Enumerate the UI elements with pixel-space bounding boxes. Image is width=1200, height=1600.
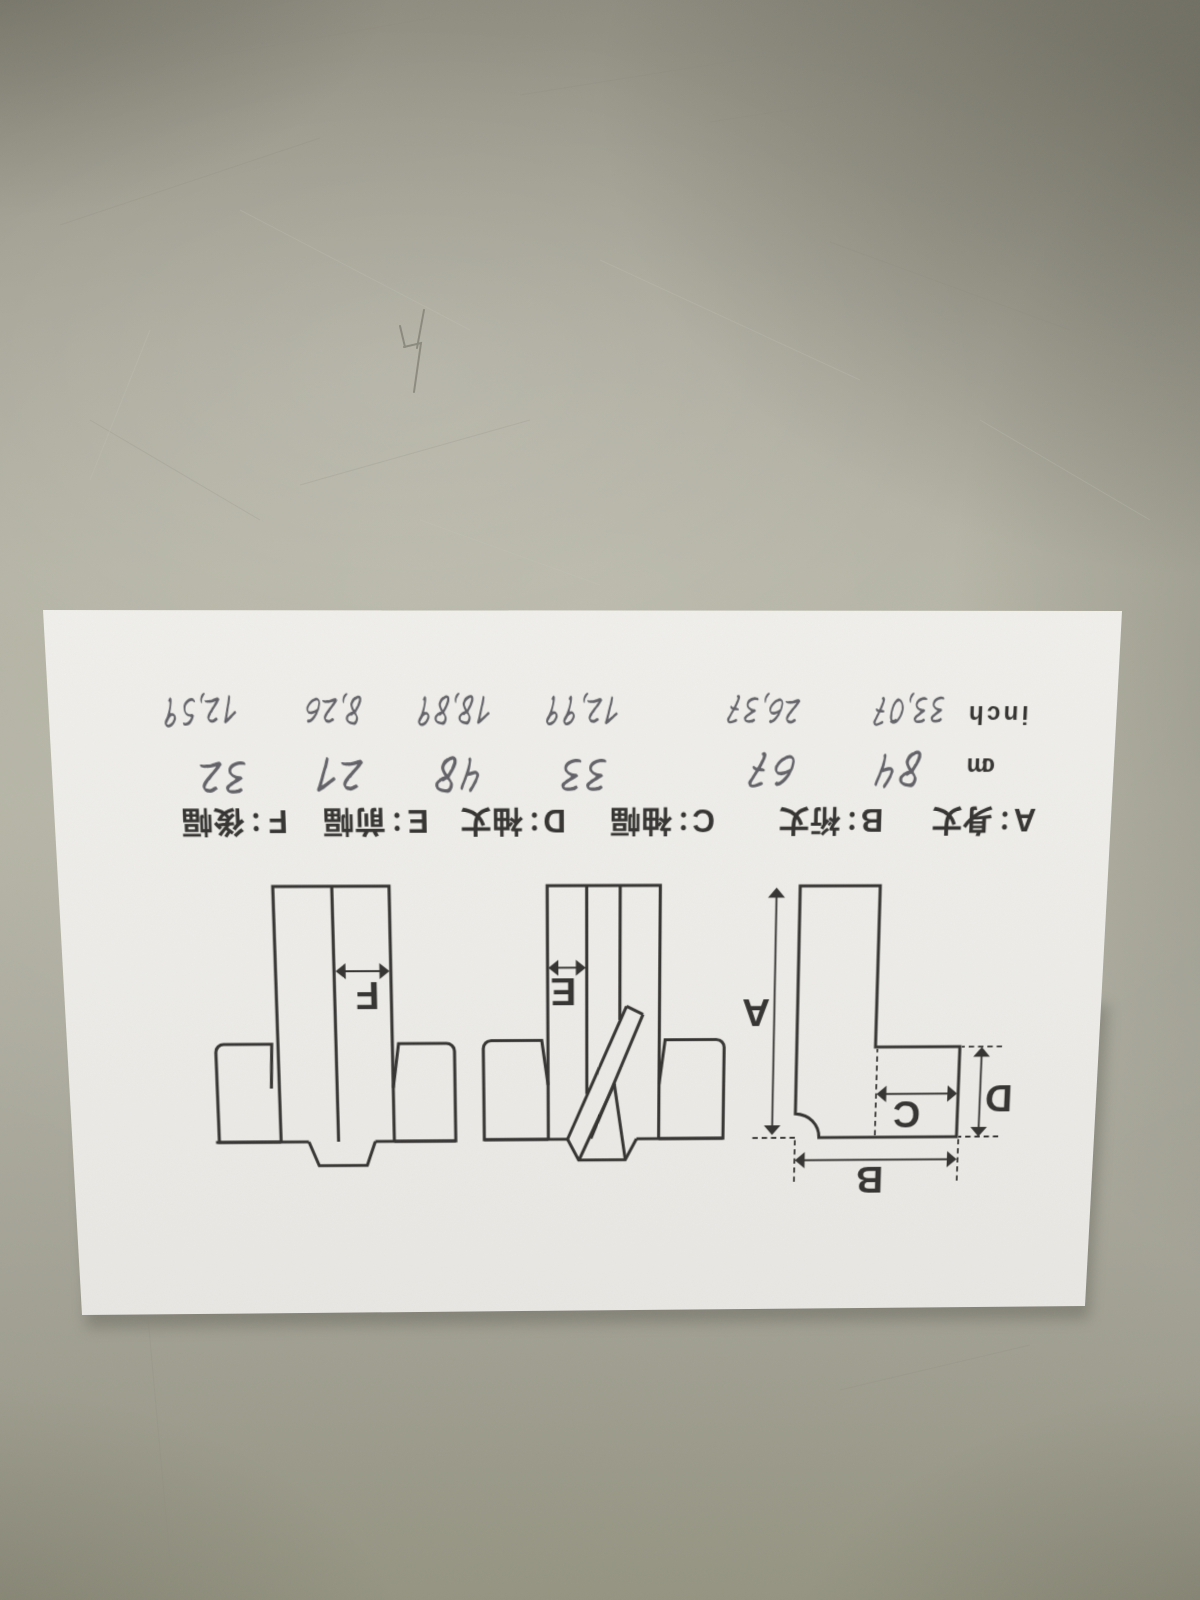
- svg-text:E: E: [407, 803, 429, 839]
- svg-text:F: F: [268, 803, 289, 839]
- svg-text:B: B: [855, 1158, 884, 1200]
- svg-text:A: A: [1013, 802, 1037, 838]
- svg-text:B: B: [860, 802, 884, 838]
- svg-text:A: A: [742, 990, 771, 1033]
- svg-text:cm: cm: [966, 752, 995, 780]
- svg-text:C: C: [692, 802, 715, 838]
- svg-text:E: E: [550, 969, 576, 1012]
- svg-text:D: D: [984, 1077, 1013, 1119]
- svg-text:D: D: [543, 803, 566, 839]
- svg-text:F: F: [355, 973, 380, 1017]
- svg-text:C: C: [892, 1093, 921, 1135]
- svg-text:inch: inch: [968, 700, 1029, 728]
